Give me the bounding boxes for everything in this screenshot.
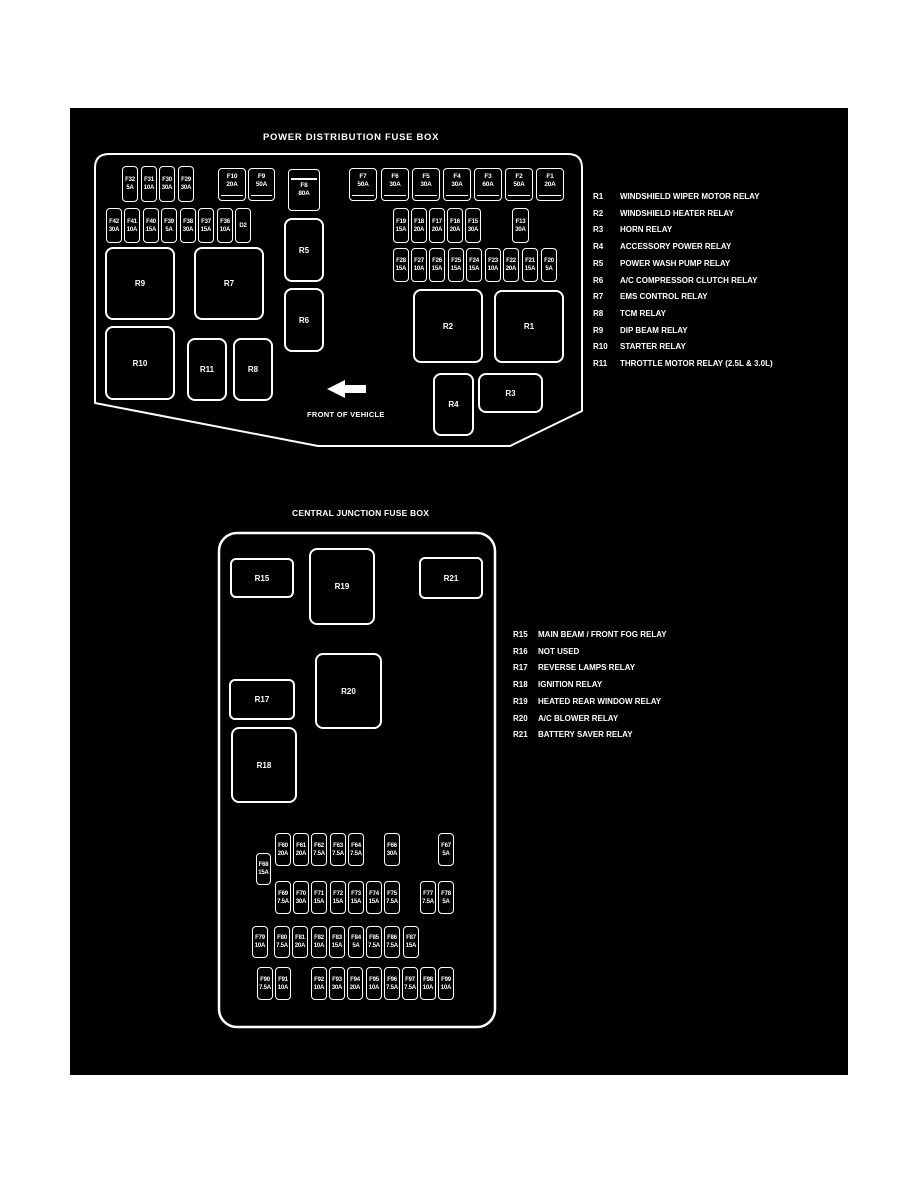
fuse-box-outlines <box>70 108 848 1075</box>
junction-box-outline <box>219 533 495 1027</box>
front-of-vehicle-arrow-icon <box>327 380 366 398</box>
power-box-outline <box>95 154 582 446</box>
front-of-vehicle-label: FRONT OF VEHICLE <box>307 410 385 419</box>
junction-box-title: CENTRAL JUNCTION FUSE BOX <box>292 508 429 518</box>
power-box-title: POWER DISTRIBUTION FUSE BOX <box>263 132 439 143</box>
diagram-panel <box>70 108 848 1075</box>
manual-page: POWER DISTRIBUTION FUSE BOX CENTRAL JUNC… <box>0 0 918 1188</box>
